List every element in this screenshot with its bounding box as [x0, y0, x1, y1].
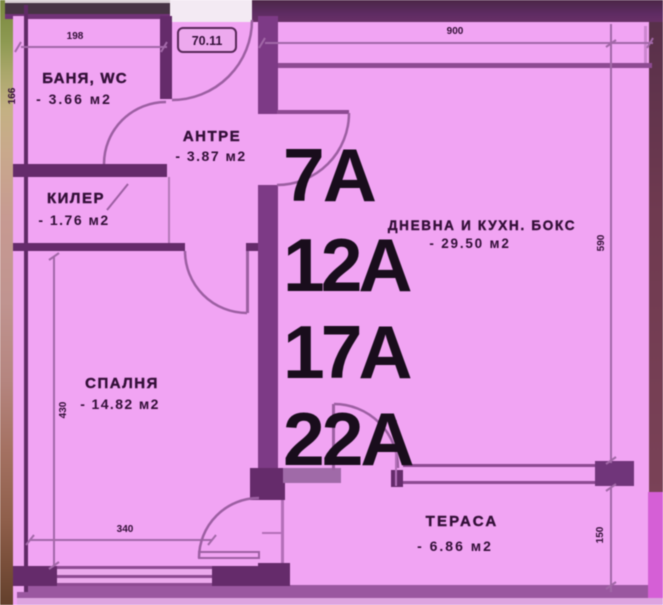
svg-text:АНТРЕ: АНТРЕ: [183, 128, 241, 145]
svg-text:430: 430: [58, 401, 69, 418]
svg-text:- 3.66 м2: - 3.66 м2: [36, 91, 112, 107]
svg-text:590: 590: [596, 234, 607, 251]
svg-text:- 29.50 м2: - 29.50 м2: [429, 236, 510, 251]
svg-text:340: 340: [117, 524, 134, 535]
svg-text:166: 166: [7, 87, 18, 104]
svg-text:КИЛЕР: КИЛЕР: [47, 190, 105, 207]
svg-text:- 14.82 м2: - 14.82 м2: [80, 396, 160, 412]
svg-text:БАНЯ, WC: БАНЯ, WC: [42, 70, 128, 87]
svg-text:198: 198: [67, 31, 84, 42]
svg-text:СПАЛНЯ: СПАЛНЯ: [85, 375, 159, 392]
svg-text:17А: 17А: [283, 310, 411, 394]
svg-text:150: 150: [595, 526, 606, 543]
svg-text:- 6.86 м2: - 6.86 м2: [417, 538, 493, 554]
svg-text:900: 900: [447, 26, 464, 37]
svg-text:- 3.87 м2: - 3.87 м2: [175, 148, 246, 164]
svg-text:70.11: 70.11: [192, 34, 223, 48]
svg-text:7А: 7А: [283, 133, 376, 217]
svg-text:ДНЕВНА И КУХН. БОКС: ДНЕВНА И КУХН. БОКС: [388, 218, 576, 233]
svg-text:ТЕРАСА: ТЕРАСА: [426, 513, 499, 530]
svg-text:12А: 12А: [283, 223, 411, 307]
svg-text:- 1.76 м2: - 1.76 м2: [38, 212, 109, 228]
svg-text:22А: 22А: [283, 397, 413, 481]
